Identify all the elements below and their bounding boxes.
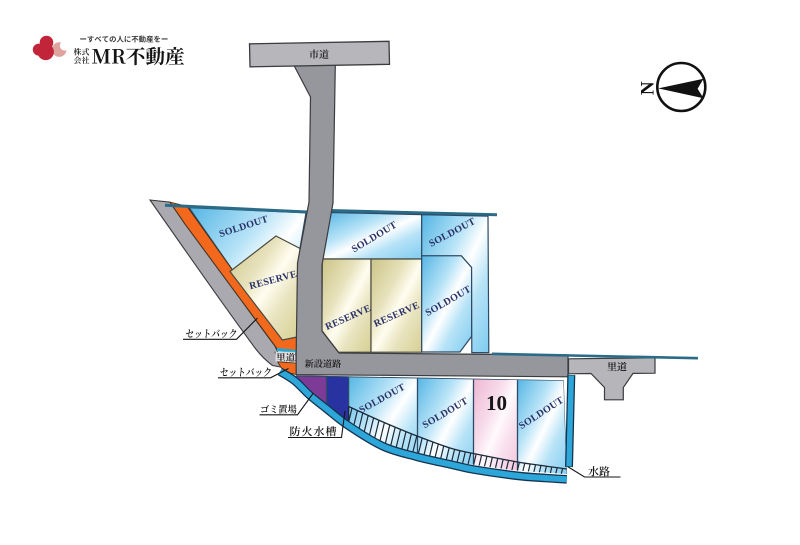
svg-text:10: 10 [486,391,507,415]
svg-text:N: N [637,81,658,95]
